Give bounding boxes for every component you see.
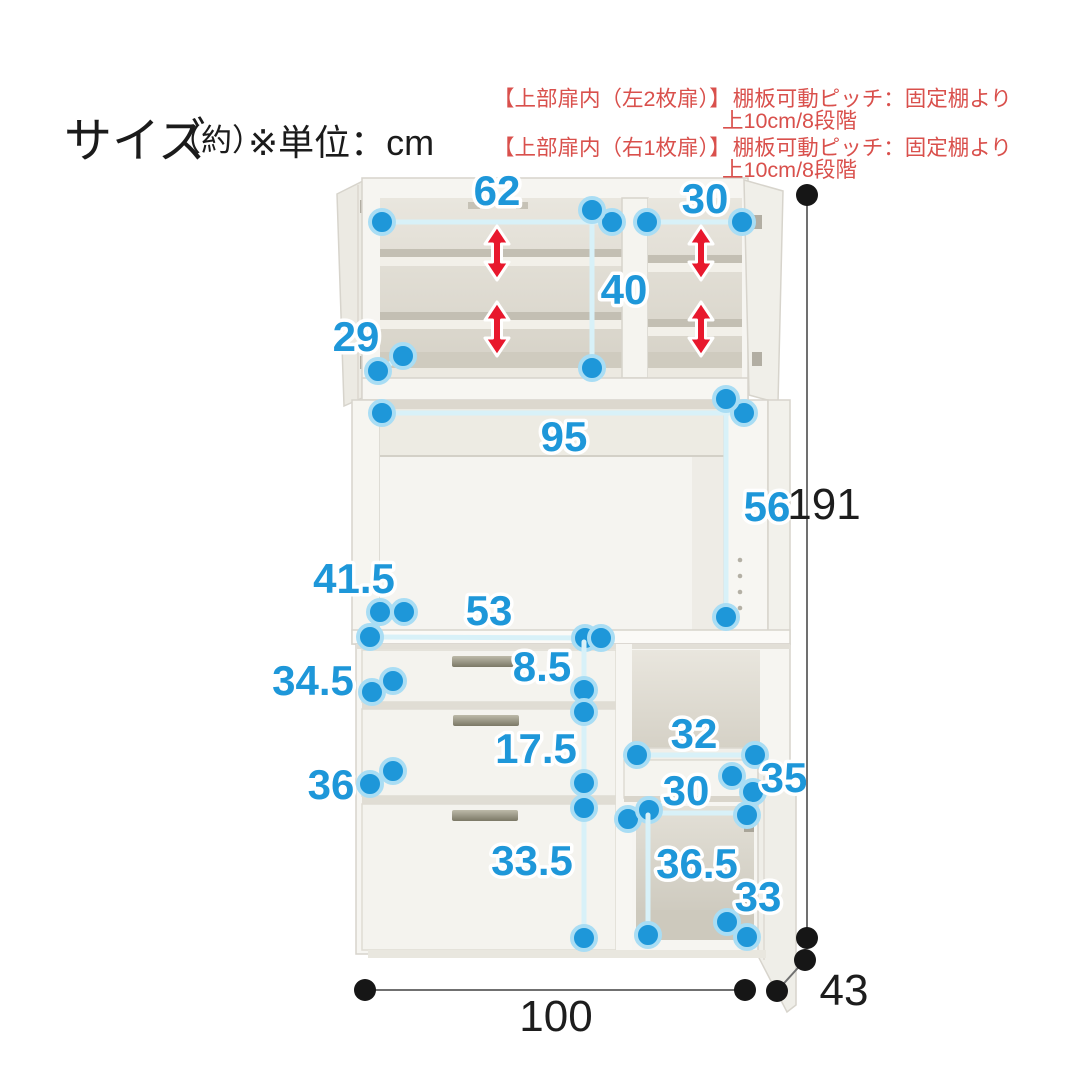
dim-dot: [572, 796, 596, 820]
middle-top-shadow: [380, 400, 724, 409]
dim-dot: [720, 764, 744, 788]
dim-dot: [391, 344, 415, 368]
dim-dot: [766, 980, 788, 1002]
dim-dot: [366, 359, 390, 383]
dim-dot: [714, 387, 738, 411]
dim-value: 56: [744, 483, 791, 530]
base-kickboard: [368, 950, 766, 958]
dim-dot: [358, 625, 382, 649]
dim-dot: [734, 979, 756, 1001]
dim-value: 36.5: [656, 840, 738, 887]
dim-dot: [735, 925, 759, 949]
page-title: サイズ （約） ※単位：cm: [64, 115, 434, 168]
dim-dot: [796, 184, 818, 206]
dim-dot: [714, 605, 738, 629]
dim-dot: [370, 401, 394, 425]
middle-back-shading: [692, 457, 724, 630]
shelf-pin-hole-icon: [738, 558, 743, 563]
dim-value: 36: [308, 761, 355, 808]
dim-value: 35: [761, 754, 808, 801]
dim-dot: [370, 210, 394, 234]
dim-dot: [580, 356, 604, 380]
dim-value: 30: [682, 175, 729, 222]
dim-dot: [735, 803, 759, 827]
dim-value: 30: [663, 767, 710, 814]
dim-dot: [796, 927, 818, 949]
size-diagram-page: 62 30 40 29 95 56 41.5: [0, 0, 1080, 1078]
upper-right-compartment: [648, 198, 742, 378]
dim-overall-height: 191: [787, 184, 860, 949]
note-upper-left-door: 【上部扉内（左2枚扉）】棚板可動ピッチ：固定棚より 上10cm/8段階: [493, 87, 1018, 133]
dim-dot: [635, 210, 659, 234]
upper-right-bottom-shadow: [648, 352, 742, 370]
dim-value: 33.5: [491, 837, 573, 884]
dim-dot: [392, 600, 416, 624]
dim-dot: [730, 210, 754, 234]
drawer-1-handle: [452, 656, 518, 667]
dim-dot: [794, 949, 816, 971]
dim-value: 17.5: [495, 725, 577, 772]
shelf-pin-hole-icon: [738, 606, 743, 611]
dim-dot: [368, 600, 392, 624]
dim-value: 41.5: [313, 555, 395, 602]
dim-value: 8.5: [513, 643, 571, 690]
dim-value: 29: [333, 313, 380, 360]
dim-dot: [625, 743, 649, 767]
dim-value: 40: [601, 266, 648, 313]
dim-dot: [381, 759, 405, 783]
shelf-pin-hole-icon: [738, 574, 743, 579]
dim-dot: [589, 626, 613, 650]
diagram-canvas: 62 30 40 29 95 56 41.5: [0, 0, 1080, 1078]
dim-value: 43: [820, 966, 869, 1015]
dim-dot: [572, 926, 596, 950]
dim-value: 34.5: [272, 657, 354, 704]
middle-open-back: [380, 457, 724, 630]
upper-right-bottom-rail: [648, 368, 742, 378]
dim-dot: [636, 923, 660, 947]
dim-value: 95: [541, 413, 588, 460]
note-upper-right-door: 【上部扉内（右1枚扉）】棚板可動ピッチ：固定棚より 上10cm/8段階: [493, 136, 1018, 182]
dim-dot: [580, 198, 604, 222]
dim-dot: [381, 669, 405, 693]
drawer-3-handle: [452, 810, 518, 821]
dim-dot: [354, 979, 376, 1001]
dim-overall-width: 100: [354, 979, 756, 1041]
dim-value: 62: [474, 167, 521, 214]
dim-value: 32: [671, 710, 718, 757]
dim-value: 53: [466, 587, 513, 634]
dim-value: 33: [735, 873, 782, 920]
upper-door-hinge-icon: [752, 352, 762, 366]
dim-dot: [358, 772, 382, 796]
dim-dot: [572, 771, 596, 795]
dim-value: 191: [787, 480, 860, 529]
dim-value: 100: [519, 992, 592, 1041]
dim-dot: [572, 700, 596, 724]
upper-cabinet-bottom-band: [362, 378, 748, 400]
shelf-pin-hole-icon: [738, 590, 743, 595]
